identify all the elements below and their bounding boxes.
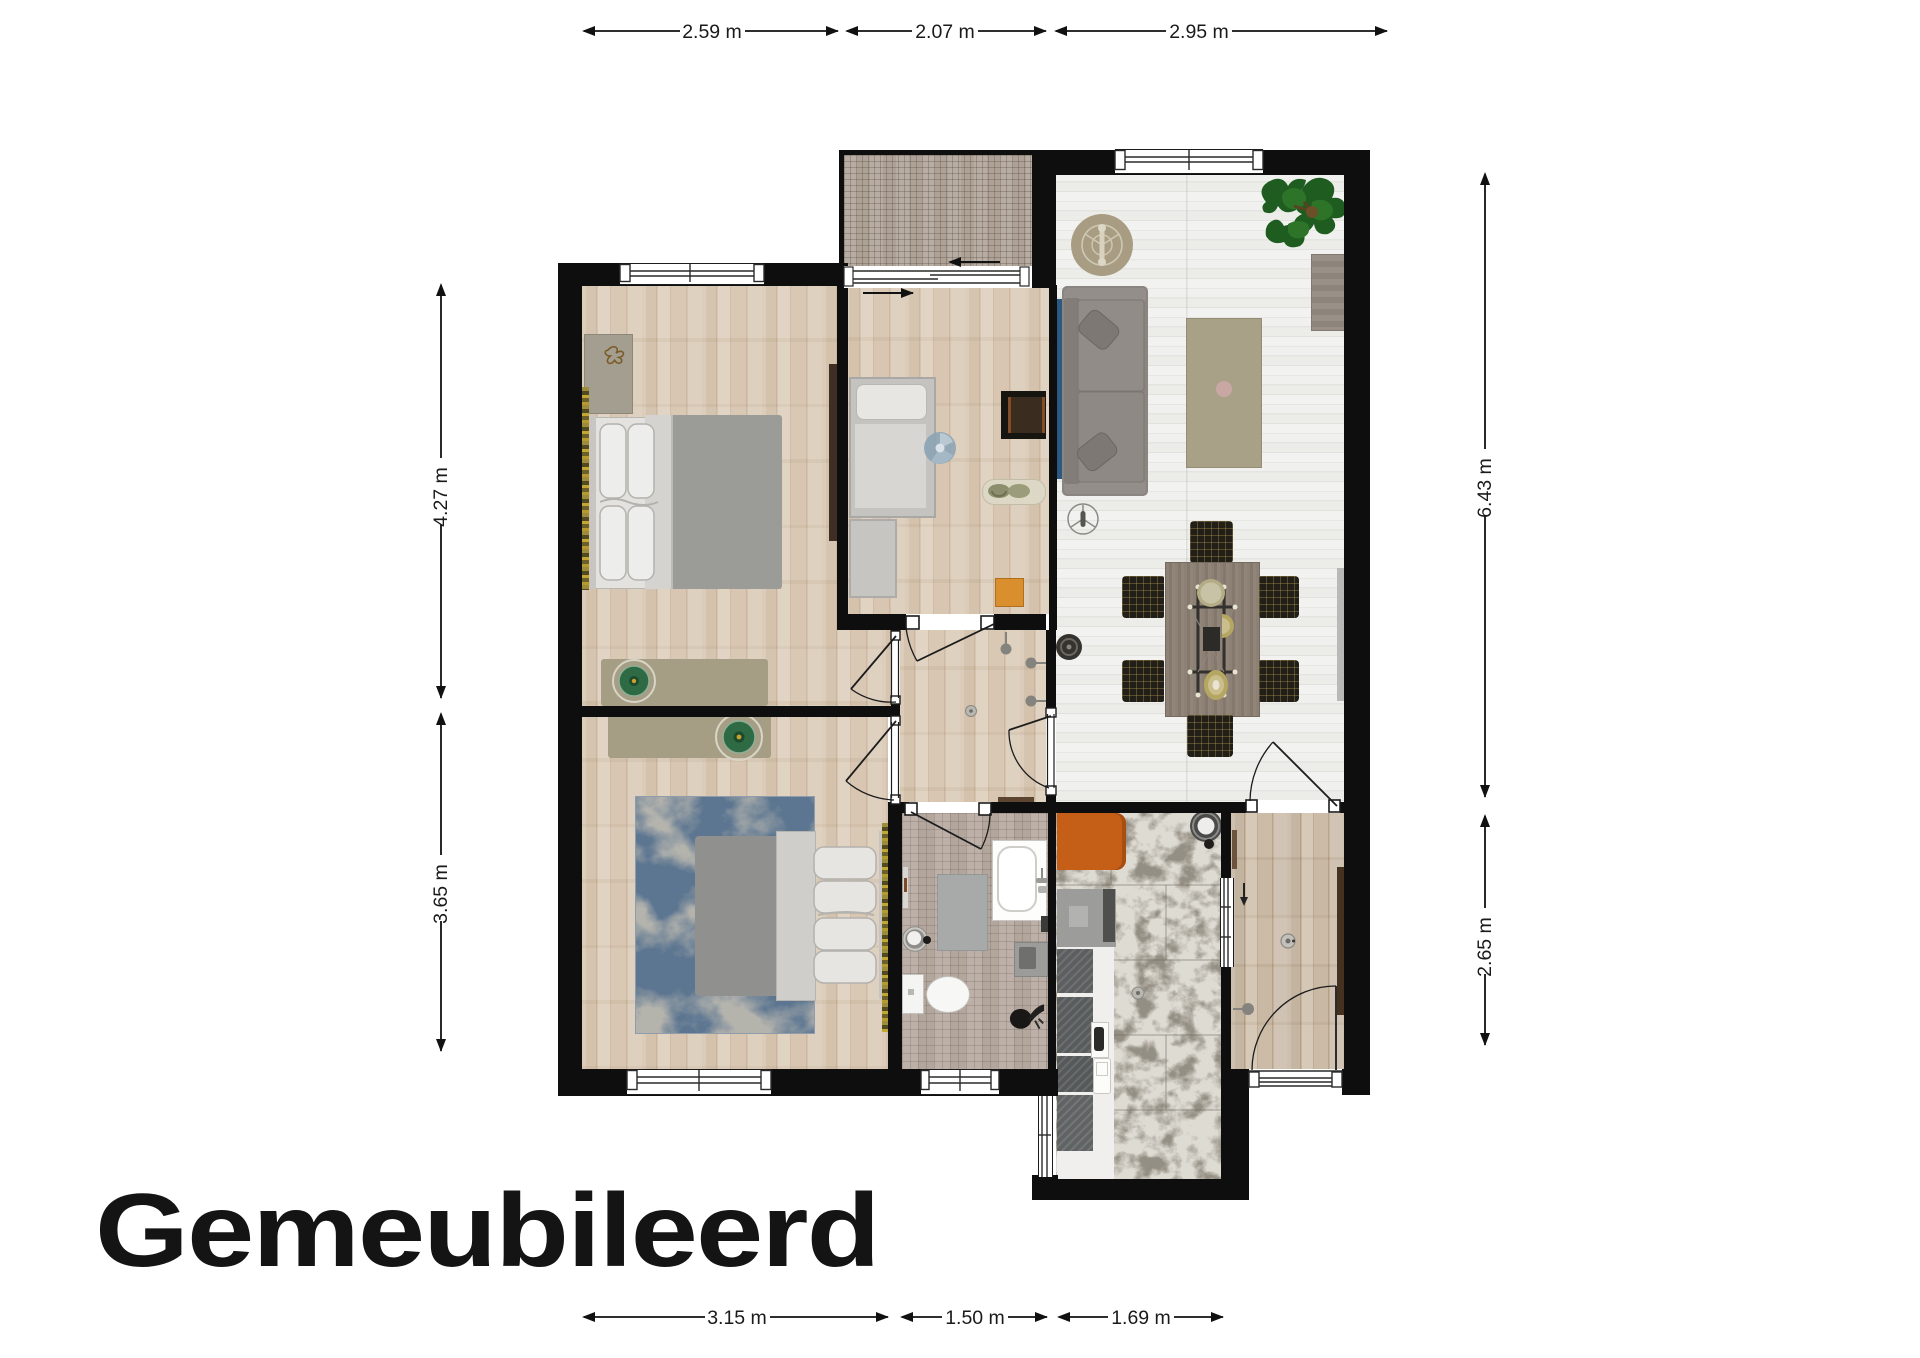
svg-text:1.50 m: 1.50 m [945, 1307, 1005, 1329]
svg-text:2.07 m: 2.07 m [915, 21, 975, 43]
svg-text:6.43 m: 6.43 m [1474, 458, 1496, 518]
svg-text:4.27 m: 4.27 m [430, 467, 452, 527]
svg-text:2.95 m: 2.95 m [1169, 21, 1229, 43]
svg-text:3.15 m: 3.15 m [707, 1307, 767, 1329]
svg-text:2.59 m: 2.59 m [682, 21, 742, 43]
svg-text:1.69 m: 1.69 m [1111, 1307, 1171, 1329]
svg-text:2.65 m: 2.65 m [1474, 917, 1496, 977]
svg-text:3.65 m: 3.65 m [430, 864, 452, 924]
